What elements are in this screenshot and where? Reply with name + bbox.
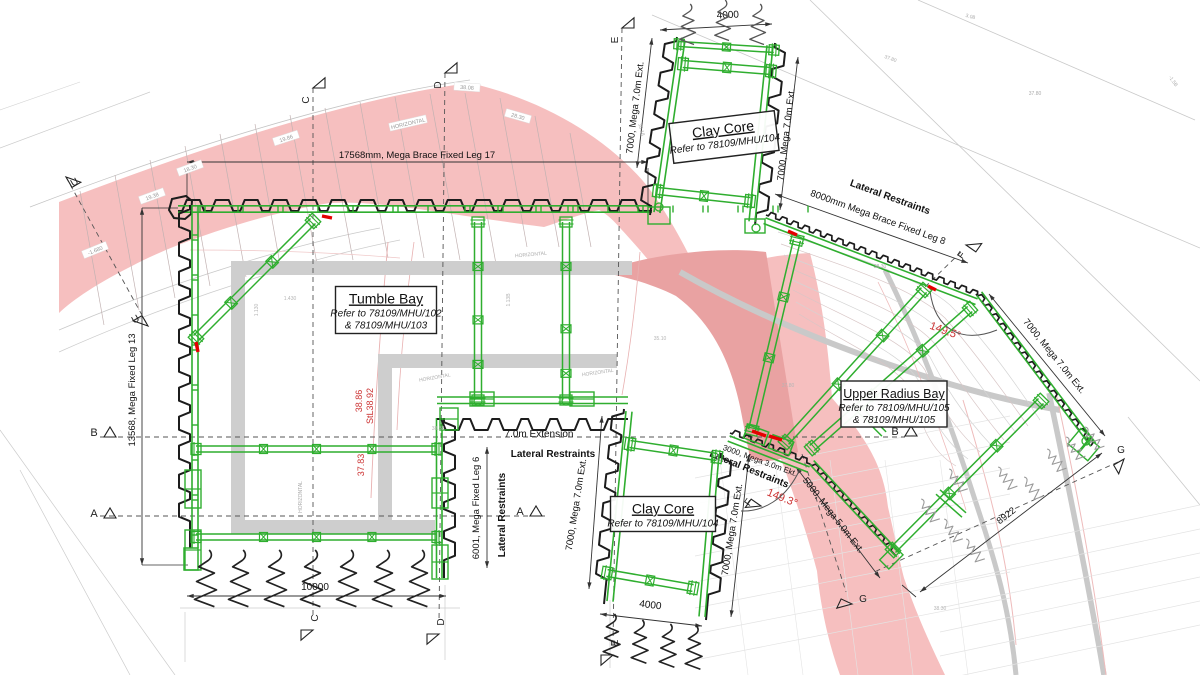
svg-text:Upper Radius Bay: Upper Radius Bay (843, 387, 945, 401)
svg-text:G: G (1117, 445, 1125, 456)
svg-text:38.08: 38.08 (460, 85, 474, 92)
svg-text:13568, Mega Fixed Leg 13: 13568, Mega Fixed Leg 13 (127, 333, 138, 446)
svg-text:E: E (610, 639, 621, 646)
svg-text:D: D (433, 81, 444, 88)
svg-text:D: D (436, 618, 447, 625)
svg-text:1.430: 1.430 (284, 296, 297, 302)
svg-text:E: E (610, 36, 621, 43)
svg-text:Clay Core: Clay Core (632, 501, 694, 517)
svg-text:G: G (859, 594, 867, 605)
svg-text:38.30: 38.30 (874, 264, 887, 270)
svg-text:B: B (90, 427, 97, 439)
svg-text:C: C (301, 96, 312, 103)
svg-text:C: C (310, 614, 321, 621)
svg-text:Refer to 78109/MHU/105: Refer to 78109/MHU/105 (838, 403, 950, 414)
svg-text:Refer to 78109/MHU/104: Refer to 78109/MHU/104 (607, 519, 719, 530)
svg-text:Refer to 78109/MHU/102: Refer to 78109/MHU/102 (330, 309, 442, 320)
svg-text:& 78109/MHU/103: & 78109/MHU/103 (345, 321, 428, 332)
svg-text:17568mm, Mega Brace Fixed Leg: 17568mm, Mega Brace Fixed Leg 17 (339, 150, 495, 161)
svg-text:B: B (891, 426, 898, 438)
svg-text:& 78109/MHU/105: & 78109/MHU/105 (853, 415, 936, 426)
svg-text:StL38.92: StL38.92 (365, 388, 375, 424)
svg-text:A: A (90, 508, 98, 520)
svg-text:6001, Mega Fixed Leg 6: 6001, Mega Fixed Leg 6 (471, 457, 482, 559)
svg-text:Tumble Bay: Tumble Bay (349, 291, 423, 307)
svg-text:37.80: 37.80 (1029, 91, 1042, 97)
svg-text:HORIZONTAL: HORIZONTAL (298, 481, 304, 513)
svg-text:38.30: 38.30 (934, 606, 947, 612)
svg-text:37.80: 37.80 (782, 383, 795, 389)
svg-text:38.38: 38.38 (432, 426, 445, 432)
svg-text:35.10: 35.10 (654, 336, 667, 342)
svg-text:Lateral Restraints: Lateral Restraints (511, 449, 596, 460)
svg-text:1.13B: 1.13B (506, 293, 512, 307)
svg-text:38.86: 38.86 (354, 390, 364, 413)
svg-text:1.130: 1.130 (254, 304, 260, 317)
svg-text:A: A (516, 506, 524, 518)
svg-text:37.83: 37.83 (356, 454, 366, 477)
svg-text:Lateral Restraints: Lateral Restraints (497, 472, 508, 557)
